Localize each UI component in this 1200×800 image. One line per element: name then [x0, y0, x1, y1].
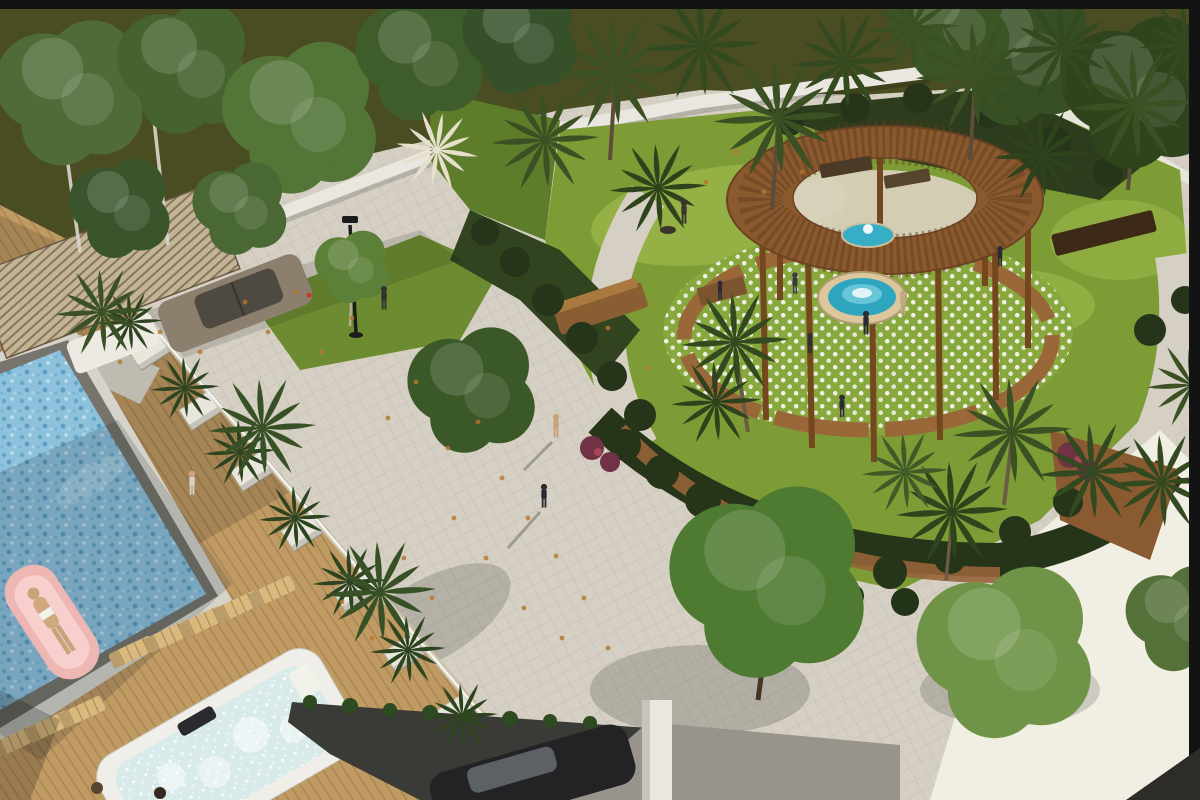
bather-head [91, 782, 103, 794]
dog [660, 226, 676, 234]
bather-head [154, 787, 166, 799]
rendering-image [0, 0, 1200, 800]
right-black-bar [1189, 0, 1200, 800]
fountain-splash [852, 288, 872, 298]
top-black-bar [0, 0, 1200, 9]
